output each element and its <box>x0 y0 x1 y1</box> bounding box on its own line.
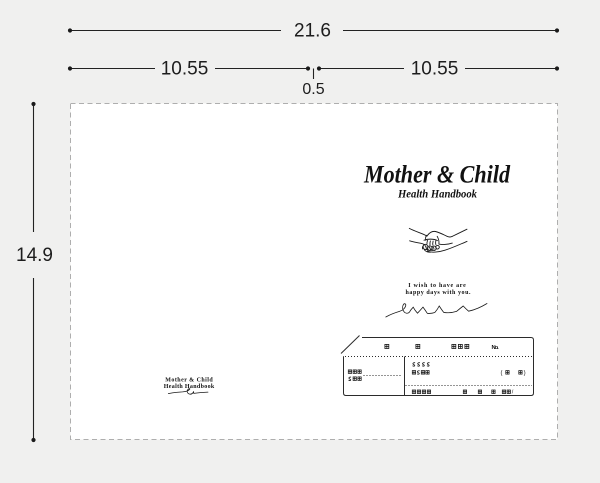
svg-text:10.55: 10.55 <box>411 59 459 80</box>
svg-text:Mother & Child: Mother & Child <box>165 378 213 384</box>
svg-text:Health Handbook: Health Handbook <box>164 384 215 390</box>
svg-text:21.6: 21.6 <box>294 21 331 42</box>
svg-text:14.9: 14.9 <box>16 245 53 266</box>
svg-text:No.: No. <box>492 345 500 351</box>
svg-text:10.55: 10.55 <box>161 59 209 80</box>
svg-text:happy days with you.: happy days with you. <box>406 290 472 296</box>
svg-text:I wish to have are: I wish to have are <box>408 283 466 289</box>
svg-text:(: ( <box>501 371 503 377</box>
svg-text:Mother & Child: Mother & Child <box>363 162 510 189</box>
svg-text:Health Handbook: Health Handbook <box>397 187 477 201</box>
svg-text:): ) <box>524 371 526 377</box>
svg-text:0.5: 0.5 <box>302 81 324 98</box>
